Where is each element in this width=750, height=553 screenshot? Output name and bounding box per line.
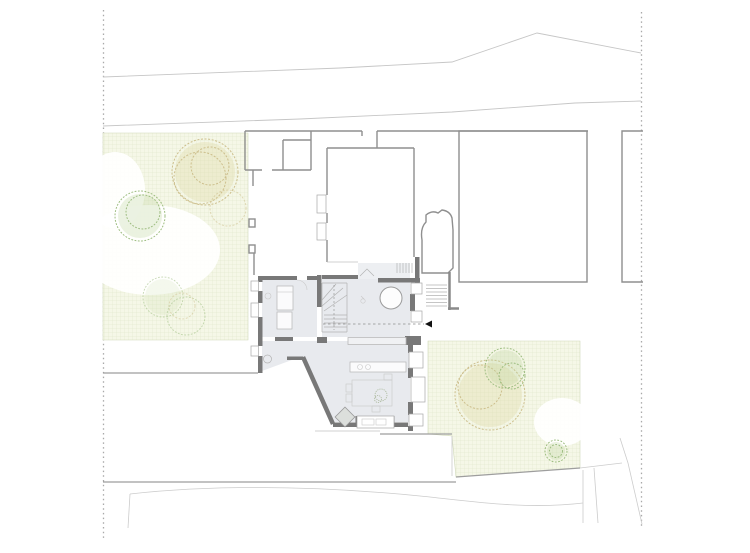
hall-floor xyxy=(322,279,410,337)
site-plan-canvas xyxy=(0,0,750,553)
neighbor-window xyxy=(317,195,326,213)
neighbor-window xyxy=(317,223,326,240)
site-plan-drawing xyxy=(0,0,750,553)
neighbor-building-right xyxy=(459,131,587,282)
round-table xyxy=(380,287,402,309)
courtyard-steps xyxy=(426,285,447,306)
parapet-band xyxy=(348,338,406,345)
left-garden xyxy=(80,133,248,340)
window-seat xyxy=(357,416,394,428)
room-floor-lower xyxy=(262,341,410,422)
courtyard-wall xyxy=(448,272,459,310)
section-arrow-icon xyxy=(425,321,432,328)
entry-floor xyxy=(358,263,410,279)
neighbor-buildings xyxy=(245,131,643,282)
annex-bay-outline xyxy=(422,210,454,273)
site-boundary-lines xyxy=(103,33,641,126)
neighbor-building-far-right xyxy=(622,131,643,282)
